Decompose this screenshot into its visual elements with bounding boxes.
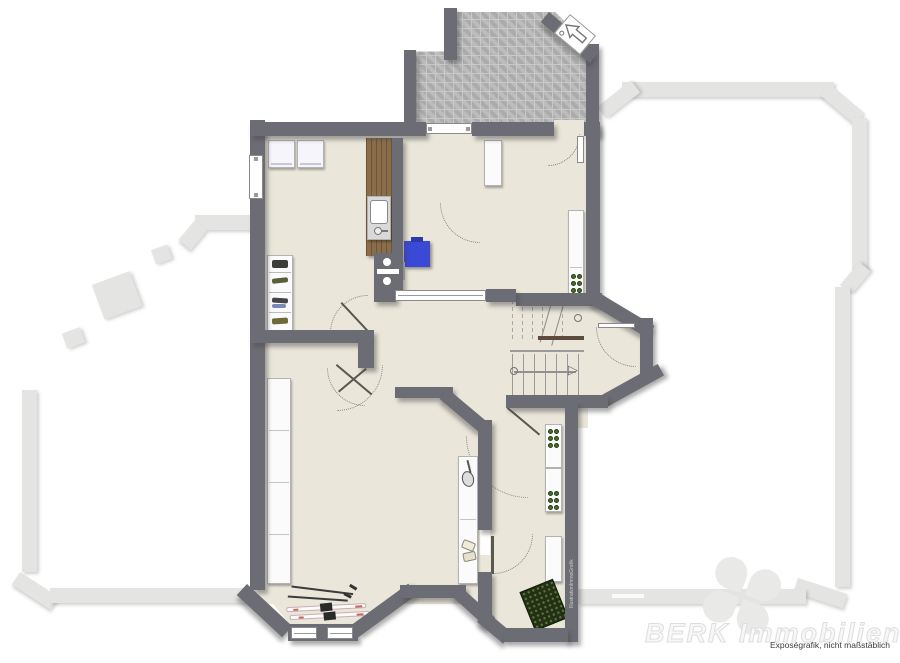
corridor-door-leaf xyxy=(491,536,494,574)
plant-dot xyxy=(554,443,559,448)
shelf-line xyxy=(460,519,476,520)
plant-dot xyxy=(554,505,559,510)
wall-laundry-south xyxy=(250,330,360,343)
plant-dot xyxy=(548,429,553,434)
side-entrance-door-leaf xyxy=(598,323,635,328)
wall-kitchen xyxy=(392,138,403,255)
stair-walk-line xyxy=(514,371,576,373)
plant-dot xyxy=(571,274,576,279)
shelf-line xyxy=(269,312,291,313)
stair-landing-line xyxy=(510,350,584,352)
plant-dot xyxy=(548,491,553,496)
wall-north-b xyxy=(472,122,554,136)
wall-corridor-west-upper xyxy=(478,420,492,530)
shoe-pair xyxy=(272,277,288,284)
wall-window-right-pier xyxy=(486,289,516,302)
ski-marking xyxy=(299,616,304,618)
stepping-stone xyxy=(151,245,172,265)
washer-door-line xyxy=(271,163,292,165)
pipe-port xyxy=(383,277,391,285)
shelf-line xyxy=(269,430,289,431)
shelf-line xyxy=(269,482,289,483)
stair-direction-arrow-icon: ▷ xyxy=(568,362,582,378)
wall-east-upper xyxy=(586,128,600,296)
pipe-port-bar xyxy=(377,269,399,274)
ski-pole-tip xyxy=(349,584,357,591)
shoe-pair xyxy=(272,304,286,308)
window-north xyxy=(426,123,472,134)
stair-handrail xyxy=(538,336,584,340)
sink xyxy=(367,196,391,240)
staircase: ▷ xyxy=(510,300,585,398)
wall-window-left-pier xyxy=(374,289,396,302)
window-sill-mark xyxy=(428,127,432,131)
boiler xyxy=(404,241,430,267)
floor-plan: ▷ xyxy=(0,0,900,663)
window-hall-partition xyxy=(395,290,486,301)
hall-cabinet-with-plants xyxy=(545,424,562,468)
wall-stair-north xyxy=(516,293,602,306)
garden-outline-south-left xyxy=(50,588,250,603)
stair-walkline-start xyxy=(510,367,518,375)
ski-binding xyxy=(323,611,336,620)
plant-dot xyxy=(548,436,553,441)
window-bay-left xyxy=(291,627,317,639)
stepping-stone xyxy=(92,271,142,319)
plant-dot xyxy=(554,491,559,496)
shoe-pair xyxy=(272,297,288,303)
window-west xyxy=(249,155,263,199)
shoe-pair xyxy=(462,551,477,563)
terrace-door-leaf xyxy=(577,136,584,163)
shelf-with-racket xyxy=(458,456,478,584)
plant-dot xyxy=(554,498,559,503)
stair-newel-mark xyxy=(574,314,582,322)
wall-stair-south xyxy=(506,395,608,408)
window-sill-mark xyxy=(254,157,258,161)
plant-dot xyxy=(577,281,582,286)
wall-north-a xyxy=(250,122,426,136)
plant-dot xyxy=(548,443,553,448)
window-mid-line xyxy=(398,295,483,296)
window-mid-line xyxy=(330,633,352,634)
window-sill-mark xyxy=(254,193,258,197)
plant-dot xyxy=(577,274,582,279)
illustrator-credit: IllustrationImmoGrafik xyxy=(569,559,575,608)
shelf-line xyxy=(570,267,582,268)
ski-marking xyxy=(355,605,362,607)
faucet-spout xyxy=(381,230,388,232)
window-mid-line xyxy=(294,633,316,634)
terrace-wall-stub xyxy=(444,8,457,60)
garden-gate-mark xyxy=(612,594,644,598)
boiler-cap xyxy=(411,237,423,242)
plant-dot xyxy=(548,505,553,510)
window-bay-right xyxy=(327,627,353,639)
ski-pole xyxy=(288,595,348,601)
washing-machine xyxy=(268,140,295,168)
racket-head xyxy=(460,470,476,488)
tall-cabinet-with-plants xyxy=(568,210,584,298)
stepping-stone xyxy=(62,327,85,349)
plant-dot xyxy=(554,436,559,441)
plant-dot xyxy=(548,498,553,503)
wall-hall-pillar xyxy=(358,330,374,368)
ski-binding xyxy=(320,603,333,612)
hall-cabinet-with-plants xyxy=(545,468,562,512)
washing-machine xyxy=(297,140,324,168)
wardrobe xyxy=(267,378,291,584)
shelf-line xyxy=(269,272,291,273)
garden-outline-east-upper xyxy=(852,118,867,270)
terrace-wall-left xyxy=(404,50,416,128)
ski-marking xyxy=(293,609,298,611)
hall-cabinet xyxy=(545,536,562,582)
wall-cabinet xyxy=(484,140,502,186)
plant-dot xyxy=(571,281,576,286)
shoe-rack xyxy=(267,255,293,332)
shelf-line xyxy=(269,534,289,535)
window-sill-mark xyxy=(466,127,470,131)
plant-dot xyxy=(554,429,559,434)
garden-outline-north-right xyxy=(622,82,834,97)
garden-outline-ne-diagonal-left xyxy=(597,81,640,119)
clover-petal xyxy=(711,552,752,593)
wall-corridor-south xyxy=(504,628,568,642)
stored-item xyxy=(272,260,288,268)
shoe-pair xyxy=(272,317,288,324)
washer-door-line xyxy=(300,163,321,165)
pipe-port xyxy=(383,258,391,266)
shelf-line xyxy=(269,292,291,293)
sink-basin xyxy=(370,200,388,224)
garden-outline-east-lower xyxy=(835,287,850,587)
garden-outline-west xyxy=(22,390,37,572)
disclaimer-text: Exposégrafik, nicht maßstäblich xyxy=(770,640,890,650)
